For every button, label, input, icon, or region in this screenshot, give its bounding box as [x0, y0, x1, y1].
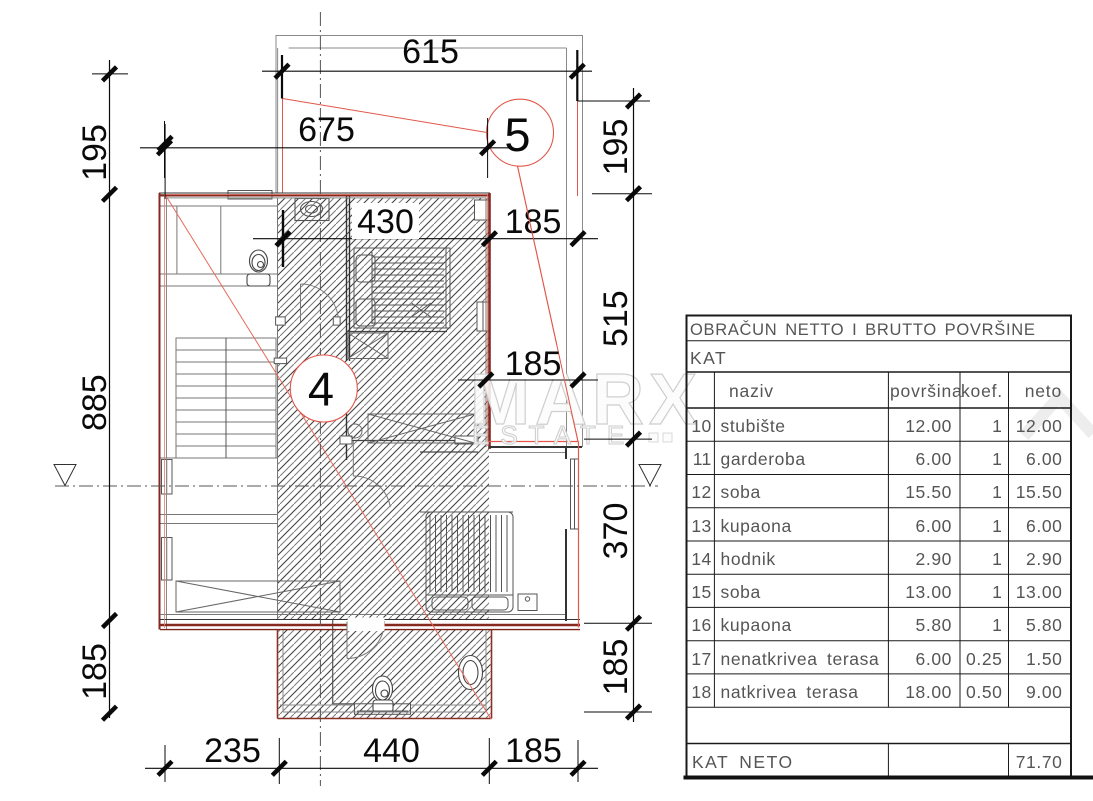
- svg-text:5.80: 5.80: [916, 615, 952, 635]
- svg-text:235: 235: [204, 732, 261, 770]
- svg-text:6.00: 6.00: [916, 449, 952, 469]
- svg-text:18: 18: [691, 682, 711, 702]
- svg-text:koef.: koef.: [961, 381, 1003, 401]
- svg-text:15.50: 15.50: [1016, 482, 1063, 502]
- svg-text:5: 5: [504, 108, 530, 161]
- svg-text:18.00: 18.00: [905, 682, 952, 702]
- svg-text:195: 195: [76, 124, 114, 181]
- svg-text:1: 1: [992, 549, 1002, 569]
- svg-text:195: 195: [597, 119, 635, 176]
- svg-text:515: 515: [597, 290, 635, 347]
- svg-text:6.00: 6.00: [916, 649, 952, 669]
- svg-text:6.00: 6.00: [916, 516, 952, 536]
- svg-text:nenatkrivea terasa: nenatkrivea terasa: [721, 649, 880, 669]
- svg-text:garderoba: garderoba: [721, 449, 806, 469]
- svg-text:12.00: 12.00: [905, 416, 952, 436]
- svg-text:1: 1: [992, 615, 1002, 635]
- svg-text:13.00: 13.00: [905, 582, 952, 602]
- svg-text:12: 12: [691, 482, 711, 502]
- svg-text:neto: neto: [1025, 381, 1062, 401]
- svg-text:12.00: 12.00: [1016, 416, 1063, 436]
- svg-text:185: 185: [597, 639, 635, 696]
- svg-text:16: 16: [691, 615, 711, 635]
- svg-text:kupaona: kupaona: [721, 516, 792, 536]
- svg-text:6.00: 6.00: [1026, 516, 1062, 536]
- svg-text:4: 4: [308, 362, 334, 415]
- svg-text:1: 1: [992, 416, 1002, 436]
- svg-text:soba: soba: [721, 482, 761, 502]
- svg-text:0.50: 0.50: [966, 682, 1002, 702]
- svg-text:185: 185: [505, 345, 562, 383]
- svg-text:2.90: 2.90: [916, 549, 952, 569]
- svg-text:13.00: 13.00: [1016, 582, 1063, 602]
- svg-text:ESTATE: ESTATE: [472, 420, 635, 450]
- svg-text:KAT: KAT: [690, 348, 727, 368]
- svg-text:1.50: 1.50: [1026, 649, 1062, 669]
- svg-text:11: 11: [693, 449, 712, 469]
- svg-text:370: 370: [597, 503, 635, 560]
- svg-text:10: 10: [691, 416, 711, 436]
- svg-text:14: 14: [691, 549, 711, 569]
- svg-text:hodnik: hodnik: [721, 549, 776, 569]
- svg-text:15: 15: [691, 582, 711, 602]
- svg-text:1: 1: [992, 516, 1002, 536]
- svg-text:KAT NETO: KAT NETO: [692, 752, 794, 772]
- svg-text:885: 885: [76, 374, 114, 431]
- svg-text:185: 185: [76, 643, 114, 700]
- svg-text:15.50: 15.50: [905, 482, 952, 502]
- svg-text:soba: soba: [721, 582, 761, 602]
- svg-text:1: 1: [992, 449, 1002, 469]
- svg-text:71.70: 71.70: [1016, 752, 1063, 772]
- svg-text:naziv: naziv: [729, 381, 774, 401]
- svg-text:površina: površina: [890, 381, 963, 401]
- svg-text:2.90: 2.90: [1026, 549, 1062, 569]
- svg-text:6.00: 6.00: [1026, 449, 1062, 469]
- svg-text:0.25: 0.25: [966, 649, 1002, 669]
- svg-text:1: 1: [992, 482, 1002, 502]
- svg-text:13: 13: [691, 516, 711, 536]
- svg-text:kupaona: kupaona: [721, 615, 792, 635]
- svg-text:17: 17: [691, 649, 711, 669]
- svg-text:OBRAČUN NETTO I BRUTTO POVRŠIN: OBRAČUN NETTO I BRUTTO POVRŠINE: [690, 320, 1036, 339]
- svg-text:natkrivea terasa: natkrivea terasa: [721, 682, 859, 702]
- svg-text:stubište: stubište: [721, 416, 786, 436]
- svg-text:185: 185: [505, 732, 562, 770]
- svg-text:1: 1: [992, 582, 1002, 602]
- svg-text:440: 440: [363, 732, 420, 770]
- svg-text:615: 615: [402, 33, 459, 71]
- svg-text:5.80: 5.80: [1026, 615, 1062, 635]
- svg-text:430: 430: [357, 203, 414, 241]
- svg-text:675: 675: [298, 111, 355, 149]
- svg-text:9.00: 9.00: [1026, 682, 1062, 702]
